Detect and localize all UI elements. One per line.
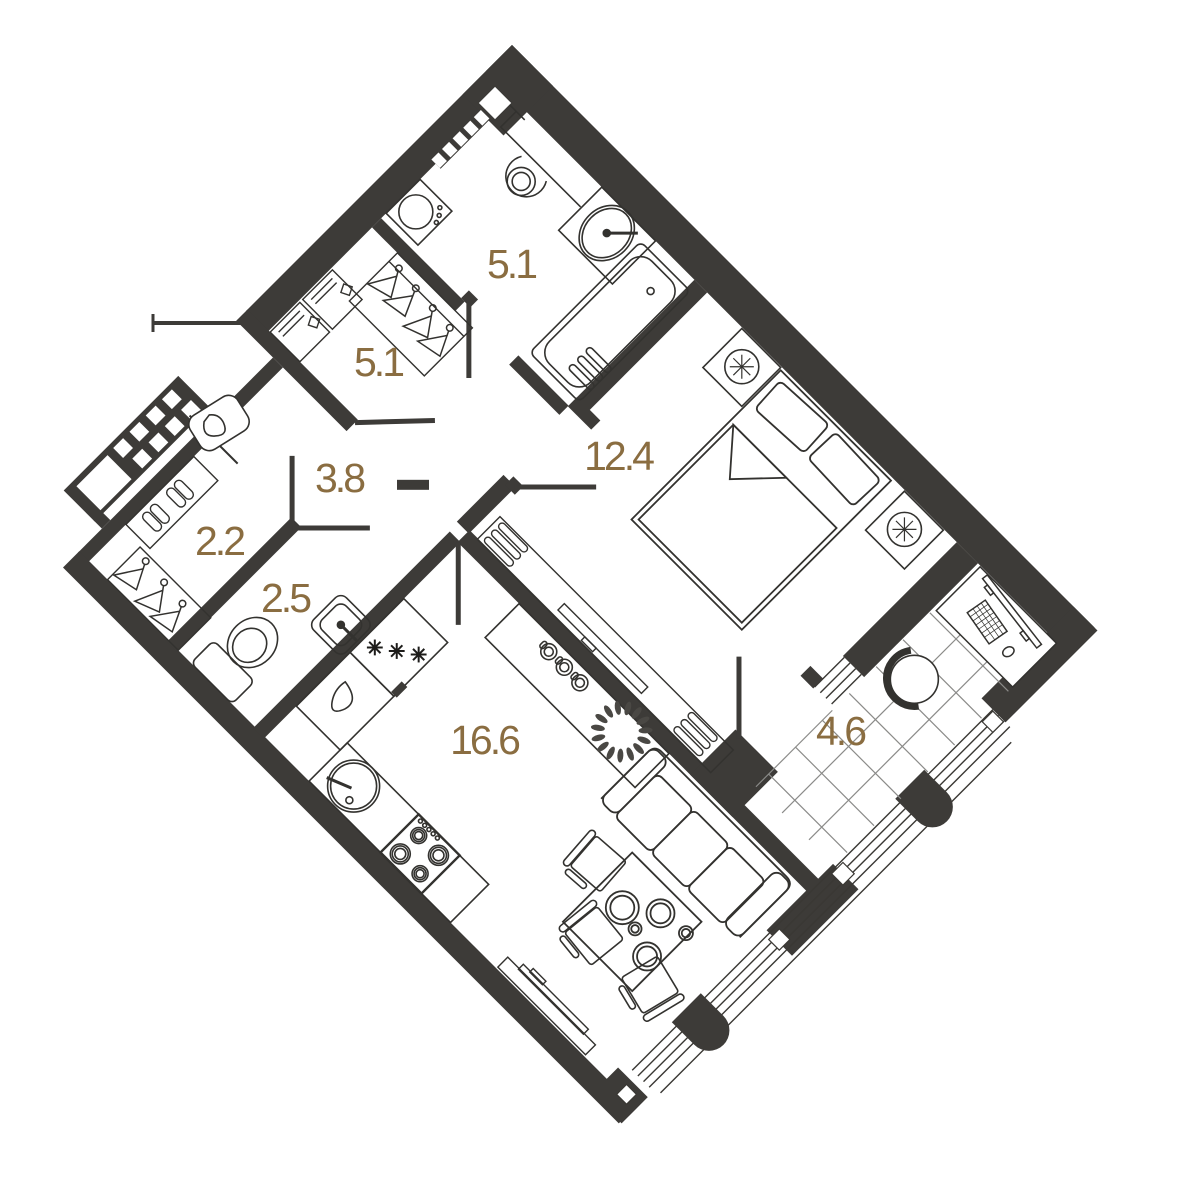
svg-text:16.6: 16.6 bbox=[450, 717, 519, 763]
svg-text:4.6: 4.6 bbox=[816, 708, 865, 754]
svg-text:2.5: 2.5 bbox=[261, 575, 311, 621]
svg-text:2.2: 2.2 bbox=[195, 518, 244, 564]
svg-text:5.1: 5.1 bbox=[487, 241, 536, 287]
svg-text:3.8: 3.8 bbox=[315, 455, 365, 501]
svg-text:12.4: 12.4 bbox=[584, 433, 654, 479]
svg-text:5.1: 5.1 bbox=[354, 339, 403, 385]
